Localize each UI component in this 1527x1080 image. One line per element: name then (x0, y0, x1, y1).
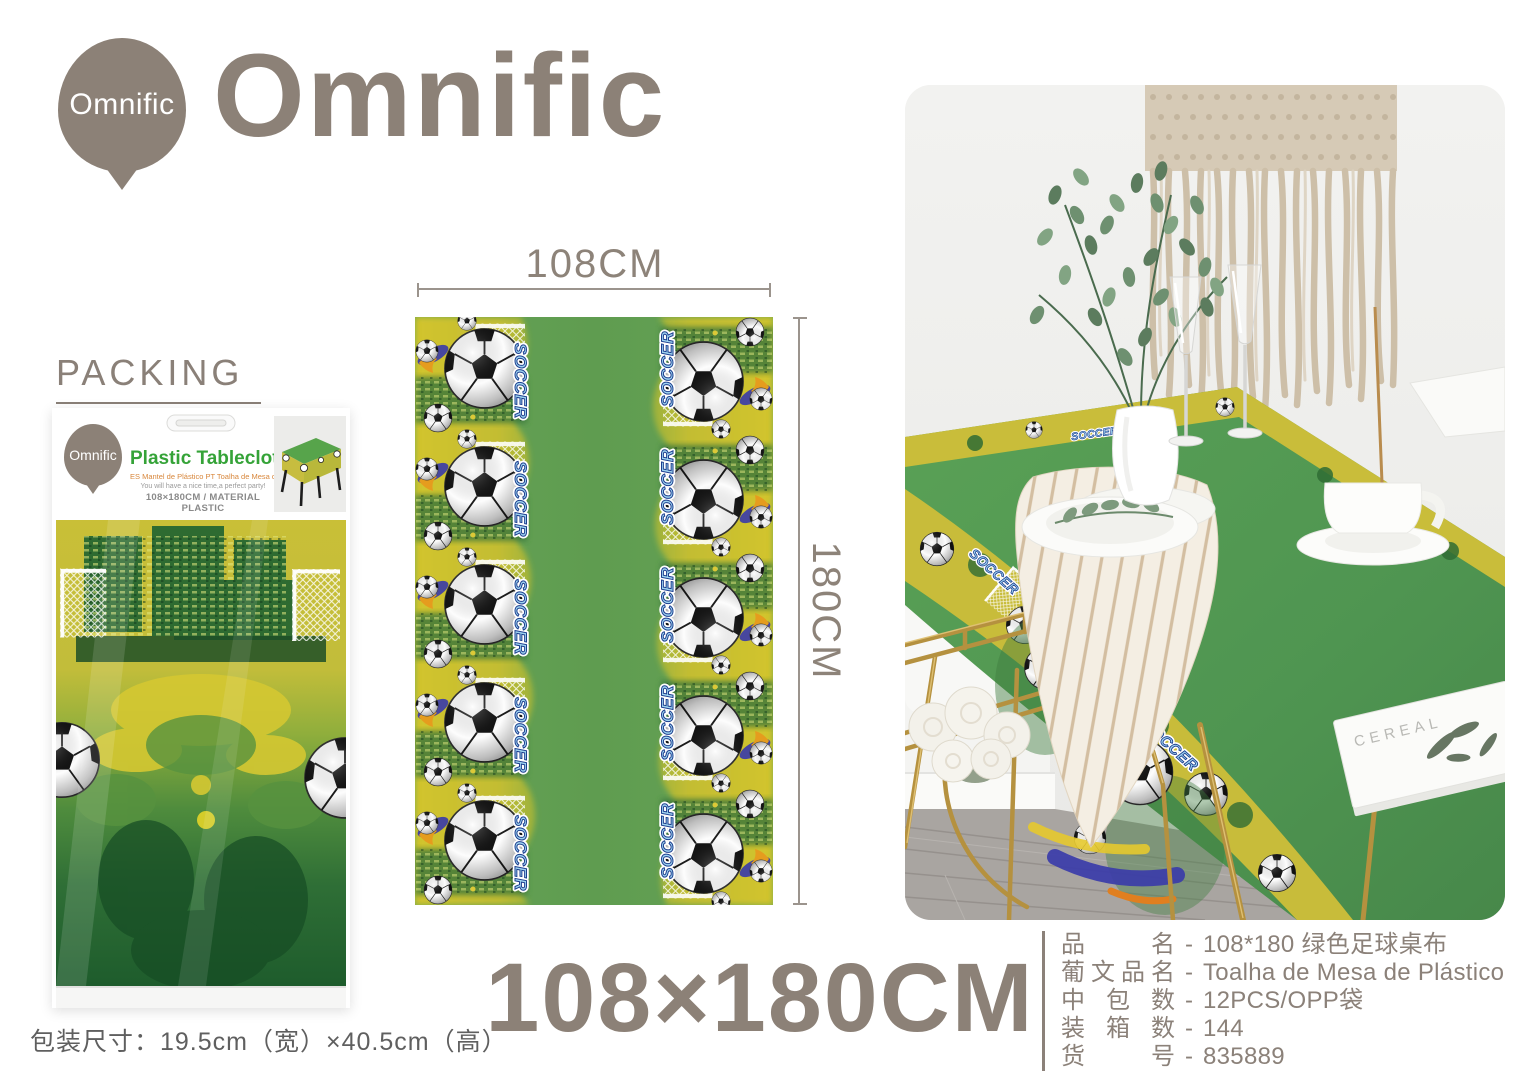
spec-row-inner-pack: 中包数 - 12PCS/OPP袋 (1061, 987, 1504, 1015)
package-product-title: Plastic Tablecloth (130, 448, 276, 470)
spec-label: 货号 (1061, 1043, 1175, 1071)
lifestyle-photo: CEREAL (905, 85, 1505, 920)
spec-value: 108*180 绿色足球桌布 (1203, 931, 1447, 959)
spec-dash: - (1185, 1043, 1193, 1071)
spec-value: Toalha de Mesa de Plástico (1203, 959, 1504, 987)
spec-row-carton-qty: 装箱数 - 144 (1061, 1015, 1504, 1043)
spec-dash: - (1185, 1015, 1193, 1043)
package-bag-print (56, 520, 346, 986)
spec-label: 葡文品名 (1061, 959, 1175, 987)
white-vase (1113, 406, 1179, 505)
package-bag-flap (56, 986, 346, 1008)
size-callout: 108×180CM (420, 942, 1100, 1054)
spec-dash: - (1185, 931, 1193, 959)
height-dimension-line (798, 317, 800, 905)
tablecloth-flat-diagram (415, 317, 773, 905)
width-dimension-label: 108CM (417, 242, 773, 287)
brand-wordmark: Omnific (213, 28, 666, 164)
package-header: Omnific Plastic Tablecloth ES Mantel de … (52, 408, 350, 520)
package-spec-line: 108×180CM / MATERIAL PLASTIC (130, 492, 276, 514)
product-sheet: Omnific Omnific PACKING Omnific Plastic … (0, 0, 1527, 1080)
spec-label: 中包数 (1061, 987, 1175, 1015)
spec-row-item-number: 货号 - 835889 (1061, 1043, 1504, 1071)
spec-value: 144 (1203, 1015, 1244, 1043)
spec-label: 装箱数 (1061, 1015, 1175, 1043)
package-text-block: Plastic Tablecloth ES Mantel de Plástico… (130, 448, 276, 514)
brand-balloon-text: Omnific (69, 88, 174, 122)
package-subtitle: ES Mantel de Plástico PT Toalha de Mesa … (130, 472, 276, 481)
spec-row-name: 品名 - 108*180 绿色足球桌布 (1061, 931, 1504, 959)
package-photo-table (274, 416, 346, 512)
spec-value: 835889 (1203, 1043, 1285, 1071)
height-dimension-label: 180CM (808, 511, 848, 711)
package-tagline: You will have a nice time,a perfect part… (130, 483, 276, 490)
spec-dash: - (1185, 987, 1193, 1015)
brand-balloon-logo-icon: Omnific (58, 38, 186, 172)
spec-value: 12PCS/OPP袋 (1203, 987, 1363, 1015)
packing-title: PACKING (56, 352, 261, 404)
package-balloon-logo-icon: Omnific (64, 424, 122, 486)
product-specs: 品名 - 108*180 绿色足球桌布 葡文品名 - Toalha de Mes… (1042, 931, 1504, 1071)
package-card: Omnific Plastic Tablecloth ES Mantel de … (52, 408, 350, 1008)
spec-row-portuguese-name: 葡文品名 - Toalha de Mesa de Plástico (1061, 959, 1504, 987)
package-brand-text: Omnific (69, 447, 116, 463)
spec-dash: - (1185, 959, 1193, 987)
package-balloon-knot-icon (86, 484, 100, 494)
spec-label: 品名 (1061, 931, 1175, 959)
balloon-knot-icon (106, 168, 138, 190)
hang-hole-icon (164, 413, 238, 433)
width-dimension-line (417, 288, 771, 290)
